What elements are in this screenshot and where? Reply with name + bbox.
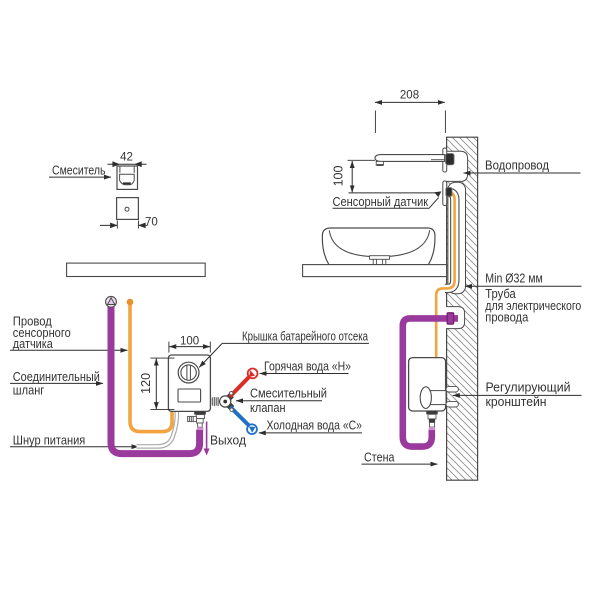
svg-text:42: 42 (120, 152, 133, 164)
svg-text:70: 70 (145, 217, 158, 229)
svg-text:Водопровод: Водопровод (485, 157, 549, 172)
svg-text:Шнур питания: Шнур питания (13, 433, 86, 448)
svg-text:Выход: Выход (210, 432, 246, 447)
svg-text:кронштейн: кронштейн (486, 394, 547, 409)
svg-text:120: 120 (139, 373, 153, 394)
svg-text:208: 208 (400, 89, 419, 101)
svg-text:100: 100 (331, 166, 345, 187)
svg-text:провода: провода (485, 310, 529, 325)
svg-text:Холодная вода «С»: Холодная вода «С» (267, 418, 363, 433)
svg-text:клапан: клапан (250, 400, 286, 415)
svg-text:Крышка батарейного отсека: Крышка батарейного отсека (242, 328, 369, 343)
svg-text:100: 100 (180, 336, 199, 348)
svg-text:Смеситель: Смеситель (52, 163, 106, 178)
svg-text:Сенсорный датчик: Сенсорный датчик (333, 194, 429, 209)
svg-text:шланг: шланг (13, 383, 45, 398)
svg-text:Регулирующий: Регулирующий (486, 379, 571, 394)
svg-text:датчика: датчика (13, 336, 54, 351)
svg-text:Смесительный: Смесительный (250, 386, 327, 401)
svg-text:Горячая вода «Н»: Горячая вода «Н» (264, 358, 351, 373)
svg-text:Min Ø32 мм: Min Ø32 мм (485, 270, 543, 285)
svg-text:Стена: Стена (364, 449, 395, 464)
